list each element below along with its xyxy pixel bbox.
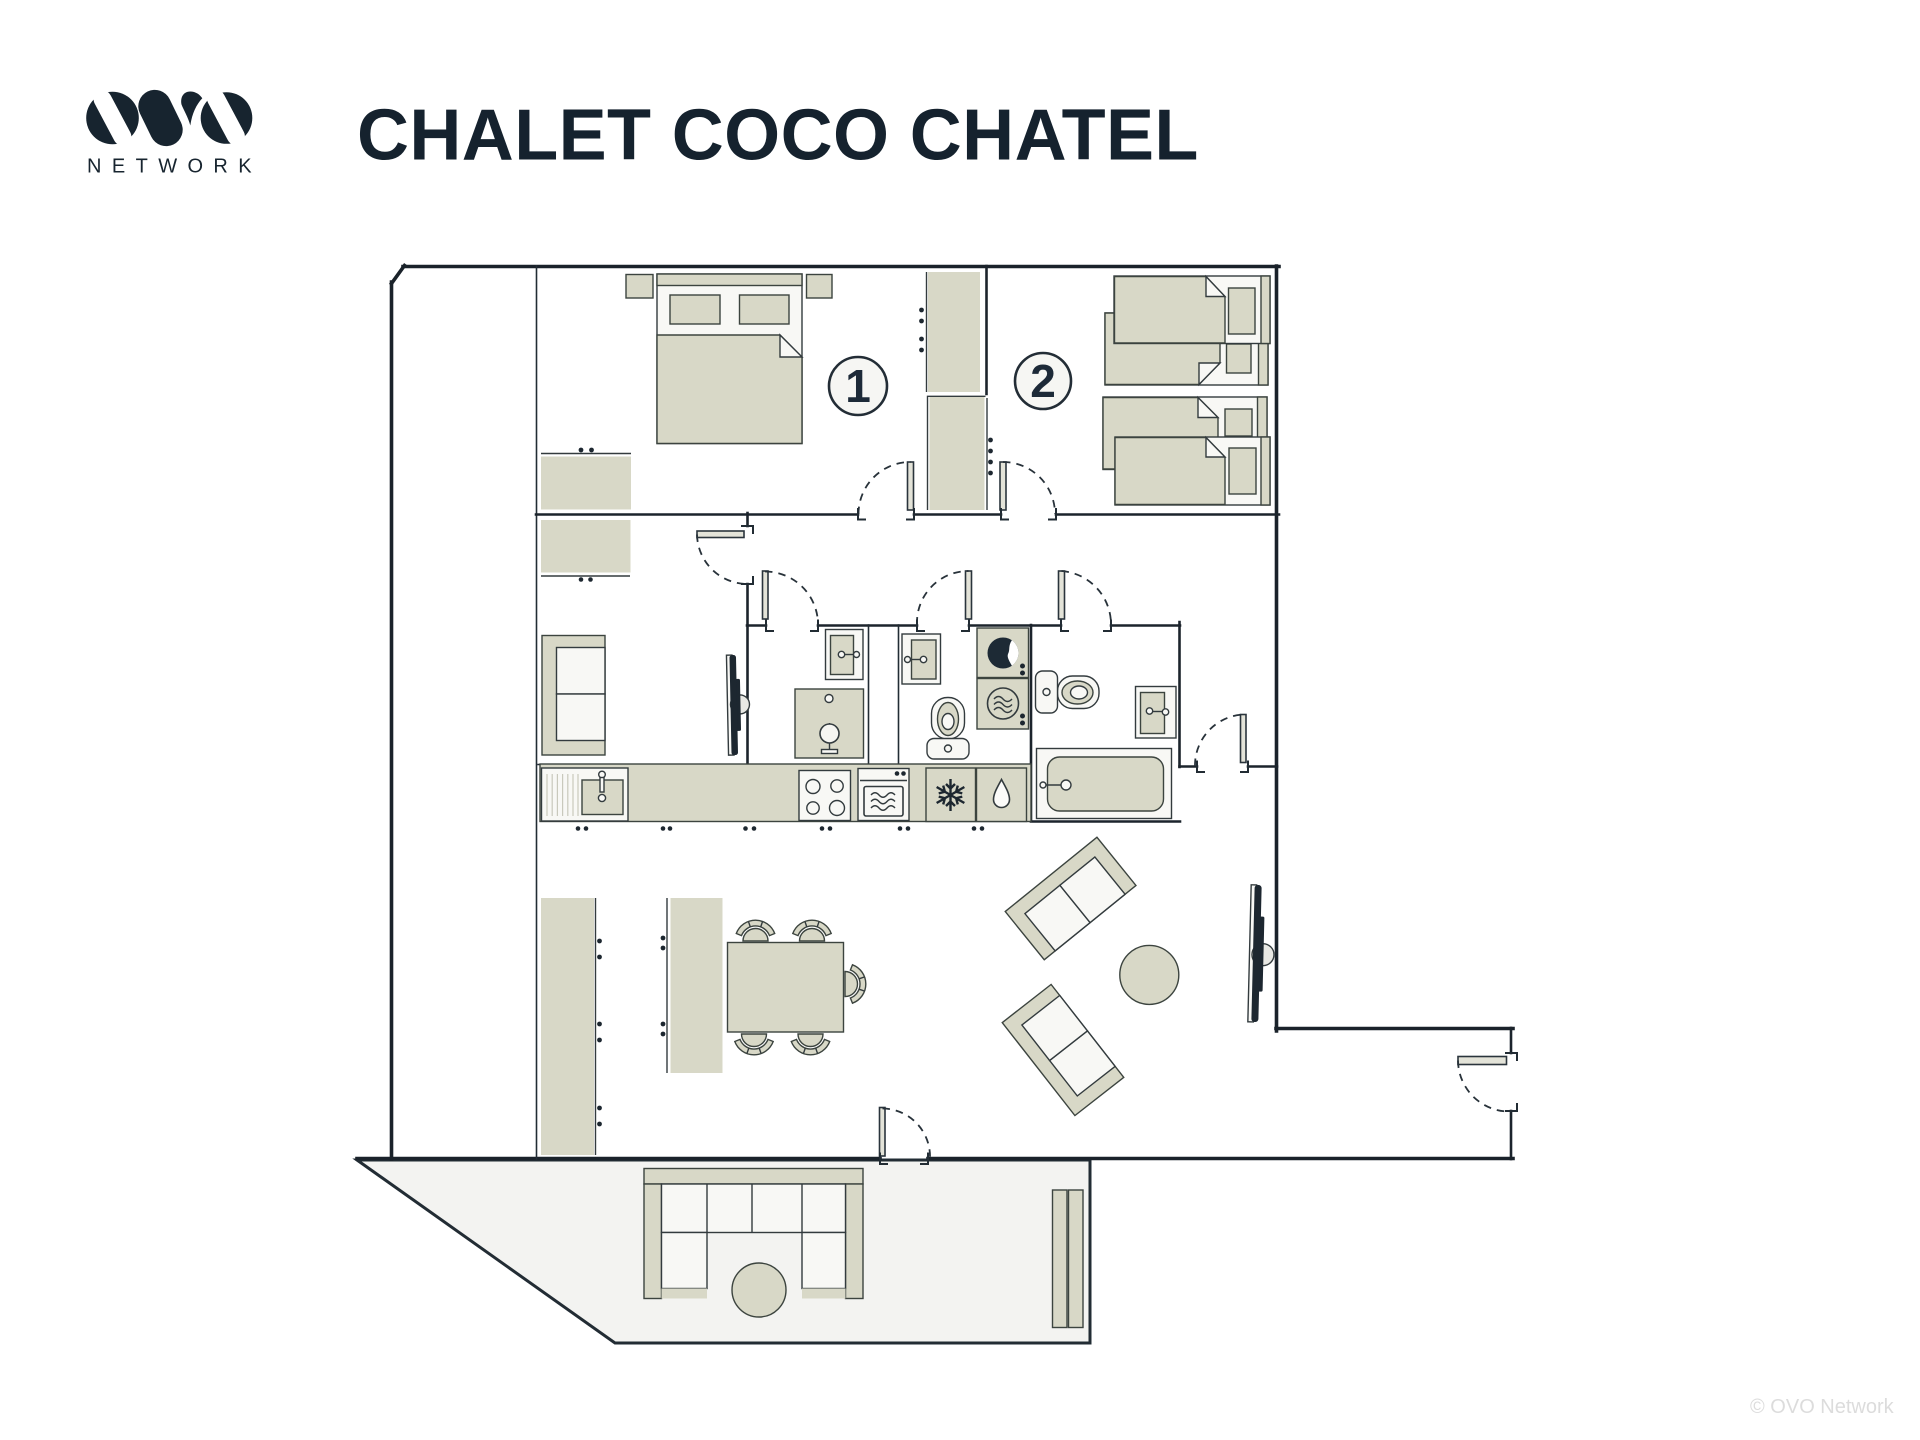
svg-text:2: 2	[1030, 355, 1056, 407]
svg-text:CHALET COCO CHATEL: CHALET COCO CHATEL	[357, 96, 1199, 176]
svg-text:© OVO Network: © OVO Network	[1750, 1396, 1895, 1418]
svg-text:1: 1	[845, 360, 871, 412]
svg-text:NETWORK: NETWORK	[87, 156, 262, 178]
